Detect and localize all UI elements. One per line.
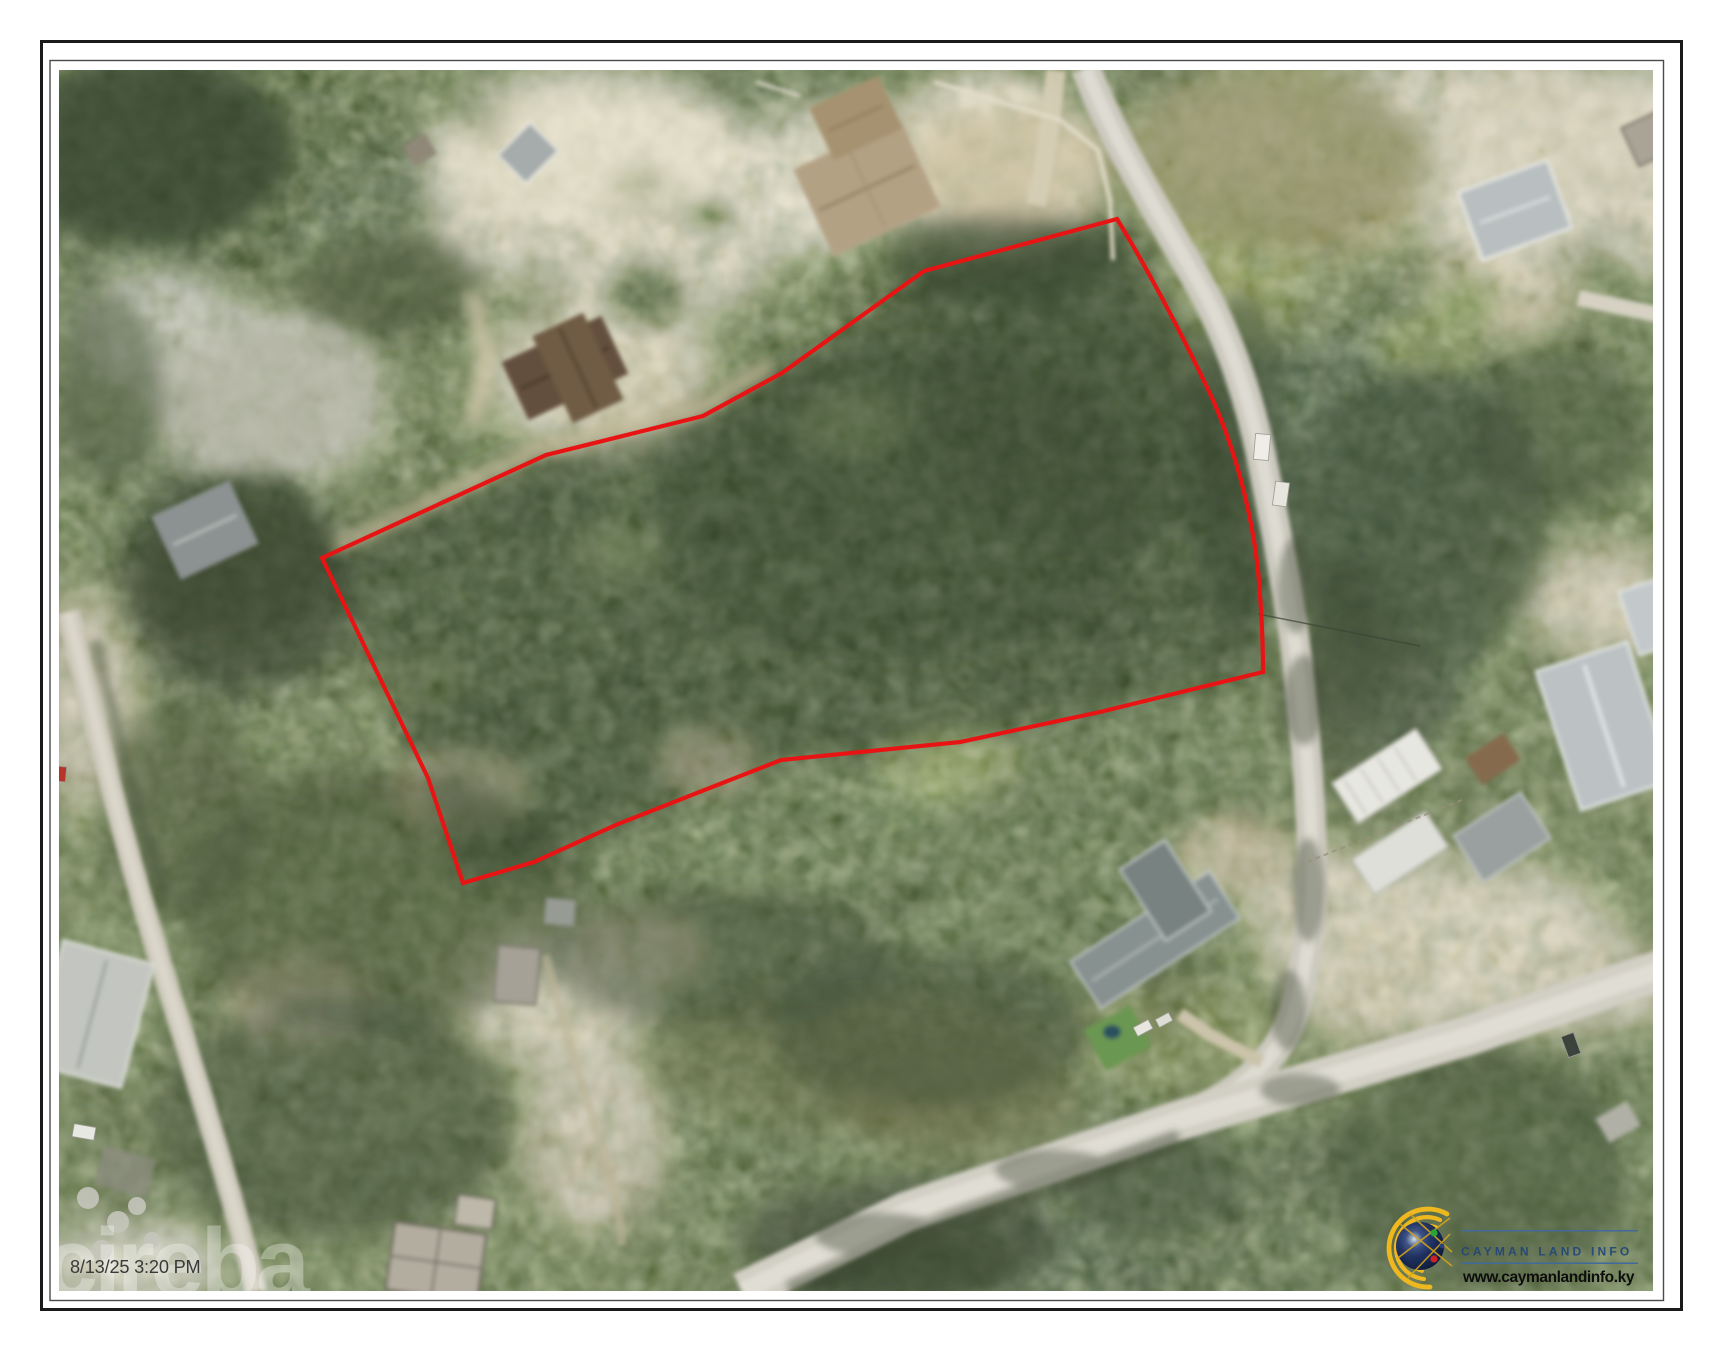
svg-text:CAYMAN LAND INFO: CAYMAN LAND INFO <box>1461 1245 1632 1259</box>
svg-text:www.caymanlandinfo.ky: www.caymanlandinfo.ky <box>1462 1269 1635 1286</box>
svg-text:8/13/25 3:20 PM: 8/13/25 3:20 PM <box>70 1257 200 1277</box>
